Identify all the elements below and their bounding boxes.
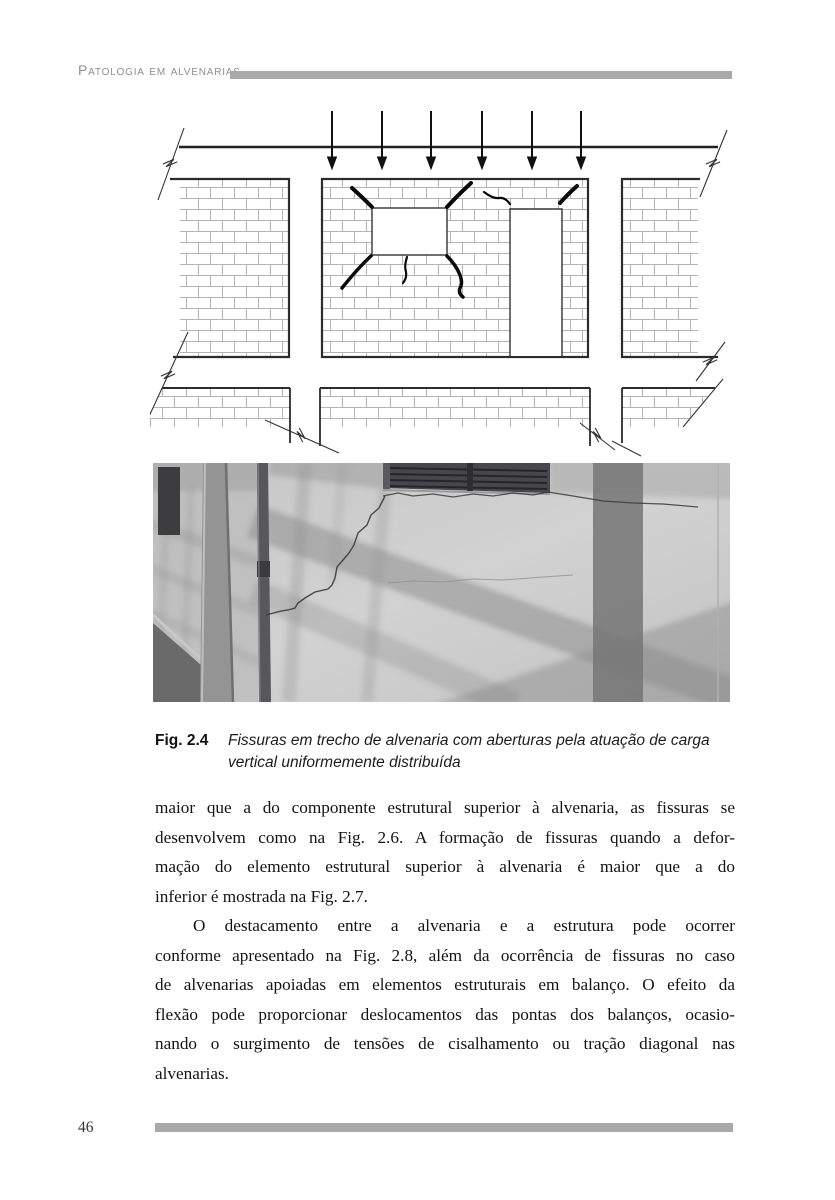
figure-photo-cracked-wall bbox=[153, 463, 730, 702]
masonry-wall-right bbox=[622, 179, 718, 357]
text-line: conforme apresentado na Fig. 2.8, além d… bbox=[155, 941, 735, 971]
text-line: alvenarias. bbox=[155, 1059, 735, 1089]
body-text: maior que a do componente estrutural sup… bbox=[155, 793, 735, 1088]
footer-rule bbox=[155, 1123, 733, 1132]
masonry-wall-left bbox=[170, 179, 289, 357]
right-shadow-band bbox=[593, 463, 643, 702]
running-header-title: Patologia em alvenarias bbox=[78, 62, 241, 78]
figure-caption: Fig. 2.4 Fissuras em trecho de alvenaria… bbox=[155, 730, 725, 774]
text-line: inferior é mostrada na Fig. 2.7. bbox=[155, 882, 735, 912]
window-opening bbox=[372, 208, 447, 255]
text-line: flexão pode proporcionar deslocamentos d… bbox=[155, 1000, 735, 1030]
text-line: desenvolvem como na Fig. 2.6. A formação… bbox=[155, 823, 735, 853]
book-page: Patologia em alvenarias bbox=[0, 0, 835, 1200]
masonry-wall-center bbox=[322, 179, 588, 357]
masonry-load-diagram bbox=[150, 100, 735, 462]
dark-doorway bbox=[158, 467, 180, 535]
text-line: de alvenarias apoiadas em elementos estr… bbox=[155, 970, 735, 1000]
page-number: 46 bbox=[78, 1119, 94, 1137]
door-opening bbox=[510, 209, 562, 356]
lower-wall-strips bbox=[150, 388, 715, 446]
text-line: maior que a do componente estrutural sup… bbox=[155, 793, 735, 823]
paragraph-2: O destacamento entre a alvenaria e a est… bbox=[155, 911, 735, 1088]
figure-caption-text: Fissuras em trecho de alvenaria com aber… bbox=[228, 730, 710, 774]
text-line: O destacamento entre a alvenaria e a est… bbox=[155, 911, 735, 941]
text-line: nando o surgimento de tensões de cisalha… bbox=[155, 1029, 735, 1059]
load-arrows bbox=[328, 111, 586, 169]
text-line: mação do elemento estrutural superior à … bbox=[155, 852, 735, 882]
pillar bbox=[200, 463, 233, 702]
paragraph-1: maior que a do componente estrutural sup… bbox=[155, 793, 735, 911]
header-rule bbox=[230, 71, 732, 79]
figure-caption-label: Fig. 2.4 bbox=[155, 730, 228, 774]
